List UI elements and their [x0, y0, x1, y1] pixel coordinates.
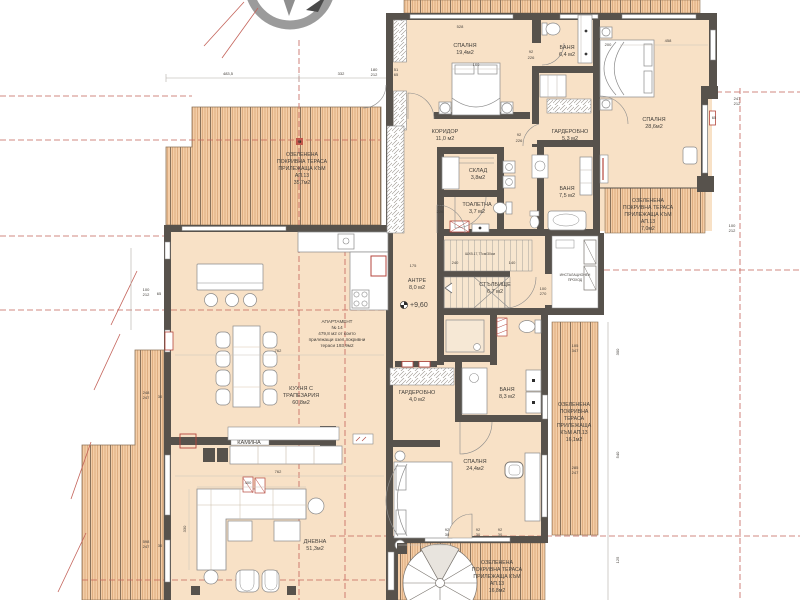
- svg-text:ШХВ.17,77см/30см: ШХВ.17,77см/30см: [465, 252, 495, 256]
- svg-text:тераси 193,9м2: тераси 193,9м2: [320, 343, 354, 348]
- svg-text:16,1м2: 16,1м2: [566, 437, 583, 443]
- svg-text:212: 212: [371, 72, 378, 77]
- svg-text:540: 540: [615, 451, 620, 458]
- svg-text:200: 200: [605, 42, 612, 47]
- svg-text:300: 300: [615, 348, 620, 355]
- svg-text:11,0 м2: 11,0 м2: [436, 136, 455, 142]
- svg-text:175: 175: [410, 263, 417, 268]
- svg-text:247: 247: [572, 470, 579, 475]
- svg-text:19,4м2: 19,4м2: [456, 50, 474, 56]
- svg-text:35,7м2: 35,7м2: [294, 180, 311, 186]
- svg-text:КАМИНА: КАМИНА: [237, 440, 261, 446]
- svg-text:ПРИЛЕЖАЩА КЪМ: ПРИЛЕЖАЩА КЪМ: [473, 574, 520, 580]
- svg-text:30: 30: [445, 532, 450, 537]
- svg-text:КУХНЯ С: КУХНЯ С: [289, 386, 313, 392]
- svg-text:7,0м2: 7,0м2: [641, 226, 655, 232]
- svg-text:прилежащи озел покривни: прилежащи озел покривни: [309, 337, 366, 342]
- svg-text:226: 226: [516, 138, 523, 143]
- svg-text:51,3м2: 51,3м2: [306, 546, 324, 552]
- svg-text:АП.13: АП.13: [490, 581, 504, 587]
- svg-text:4,0 м2: 4,0 м2: [409, 397, 425, 403]
- svg-text:ИНСТАЛАЦИОНЕН: ИНСТАЛАЦИОНЕН: [560, 273, 591, 277]
- svg-text:92: 92: [517, 132, 522, 137]
- svg-text:30: 30: [476, 532, 481, 537]
- svg-text:16,8м2: 16,8м2: [489, 588, 506, 594]
- svg-text:ОЗЕЛЕНЕНА: ОЗЕЛЕНЕНА: [481, 560, 513, 566]
- svg-text:ПОКРИВНА ТЕРАСА: ПОКРИВНА ТЕРАСА: [472, 567, 523, 573]
- svg-text:ОЗЕЛЕНЕНА: ОЗЕЛЕНЕНА: [632, 198, 664, 204]
- svg-text:212: 212: [143, 292, 150, 297]
- svg-text:КОРИДОР: КОРИДОР: [432, 129, 459, 135]
- svg-text:6,4 м2: 6,4 м2: [559, 52, 575, 58]
- svg-text:247: 247: [143, 544, 150, 549]
- svg-text:СПАЛНЯ: СПАЛНЯ: [642, 117, 665, 123]
- svg-text:СКЛАД: СКЛАД: [469, 168, 488, 174]
- svg-text:ПОКРИВНА: ПОКРИВНА: [560, 409, 589, 415]
- svg-text:КЪМ АП.13: КЪМ АП.13: [560, 430, 587, 436]
- svg-text:ТОАЛЕТНА: ТОАЛЕТНА: [462, 202, 492, 208]
- svg-text:5,3 м2: 5,3 м2: [562, 136, 578, 142]
- svg-text:160: 160: [473, 62, 480, 67]
- svg-text:ПРОХОД: ПРОХОД: [568, 278, 583, 282]
- svg-text:479,8 м2 от които: 479,8 м2 от които: [318, 331, 356, 336]
- svg-text:332: 332: [338, 71, 345, 76]
- svg-text:528: 528: [457, 24, 464, 29]
- svg-text:АНТРЕ: АНТРЕ: [408, 278, 427, 284]
- svg-text:270: 270: [540, 291, 547, 296]
- svg-text:92: 92: [529, 49, 534, 54]
- svg-text:ПРИЛЕЖАЩА КЪМ: ПРИЛЕЖАЩА КЪМ: [278, 166, 325, 172]
- svg-text:БАНЯ: БАНЯ: [499, 387, 514, 393]
- svg-text:БАНЯ: БАНЯ: [559, 45, 574, 51]
- svg-text:212: 212: [729, 228, 736, 233]
- svg-text:АПАРТАМЕНТ: АПАРТАМЕНТ: [322, 319, 353, 324]
- svg-text:№ 14: № 14: [331, 325, 343, 330]
- svg-text:АП.13: АП.13: [295, 173, 309, 179]
- svg-text:60,8м2: 60,8м2: [292, 400, 310, 406]
- svg-text:65: 65: [157, 291, 162, 296]
- svg-text:8,0 м2: 8,0 м2: [409, 285, 425, 291]
- svg-text:ПРИЛЕЖАЩА КЪМ: ПРИЛЕЖАЩА КЪМ: [624, 212, 671, 218]
- svg-text:240: 240: [452, 260, 459, 265]
- svg-text:3,8м2: 3,8м2: [471, 175, 486, 181]
- svg-text:БАНЯ: БАНЯ: [559, 186, 574, 192]
- svg-text:ПОКРИВНА ТЕРАСА: ПОКРИВНА ТЕРАСА: [277, 159, 328, 165]
- svg-text:30: 30: [158, 543, 163, 548]
- svg-text:ТРАПЕЗАРИЯ: ТРАПЕЗАРИЯ: [283, 393, 319, 399]
- svg-text:65: 65: [712, 115, 717, 120]
- svg-text:ГАРДЕРОБНО: ГАРДЕРОБНО: [399, 390, 436, 396]
- svg-text:226: 226: [437, 209, 444, 214]
- svg-text:247: 247: [143, 395, 150, 400]
- svg-text:+9,60: +9,60: [410, 302, 428, 309]
- svg-text:ГАРДЕРОБНО: ГАРДЕРОБНО: [552, 129, 589, 135]
- svg-text:ОЗЕЛЕНЕНА: ОЗЕЛЕНЕНА: [286, 152, 318, 158]
- svg-text:762: 762: [275, 469, 282, 474]
- svg-text:140: 140: [509, 260, 516, 265]
- svg-text:ПРИЛЕЖАЩА: ПРИЛЕЖАЩА: [557, 423, 592, 429]
- svg-text:СПАЛНЯ: СПАЛНЯ: [463, 459, 486, 465]
- svg-text:СПАЛНЯ: СПАЛНЯ: [453, 43, 476, 49]
- svg-text:400: 400: [245, 480, 252, 485]
- svg-text:762: 762: [275, 348, 282, 353]
- svg-text:226: 226: [528, 55, 535, 60]
- svg-text:24,4м2: 24,4м2: [466, 466, 484, 472]
- svg-text:ДНЕВНА: ДНЕВНА: [304, 539, 327, 545]
- svg-text:77: 77: [438, 203, 443, 208]
- svg-text:АП.13: АП.13: [641, 219, 655, 225]
- svg-text:30: 30: [158, 394, 163, 399]
- svg-text:458: 458: [665, 38, 672, 43]
- svg-text:8,3 м2: 8,3 м2: [499, 394, 515, 400]
- svg-text:ПОКРИВНА ТЕРАСА: ПОКРИВНА ТЕРАСА: [623, 205, 674, 211]
- svg-text:212: 212: [734, 101, 741, 106]
- svg-text:7,5 м2: 7,5 м2: [559, 193, 575, 199]
- svg-text:125: 125: [615, 556, 620, 563]
- svg-text:6,7 м2: 6,7 м2: [487, 289, 503, 295]
- svg-text:65: 65: [394, 72, 399, 77]
- svg-text:483,5: 483,5: [223, 71, 234, 76]
- svg-text:330: 330: [182, 525, 187, 532]
- svg-text:СТЪЛБИЩЕ: СТЪЛБИЩЕ: [479, 282, 511, 288]
- svg-text:ТЕРАСА: ТЕРАСА: [564, 416, 585, 422]
- svg-text:3,7 м2: 3,7 м2: [469, 209, 485, 215]
- svg-text:28,6м2: 28,6м2: [645, 124, 663, 130]
- svg-text:ОЗЕЛЕНЕНА: ОЗЕЛЕНЕНА: [558, 402, 590, 408]
- svg-text:347: 347: [572, 348, 579, 353]
- svg-text:30: 30: [498, 532, 503, 537]
